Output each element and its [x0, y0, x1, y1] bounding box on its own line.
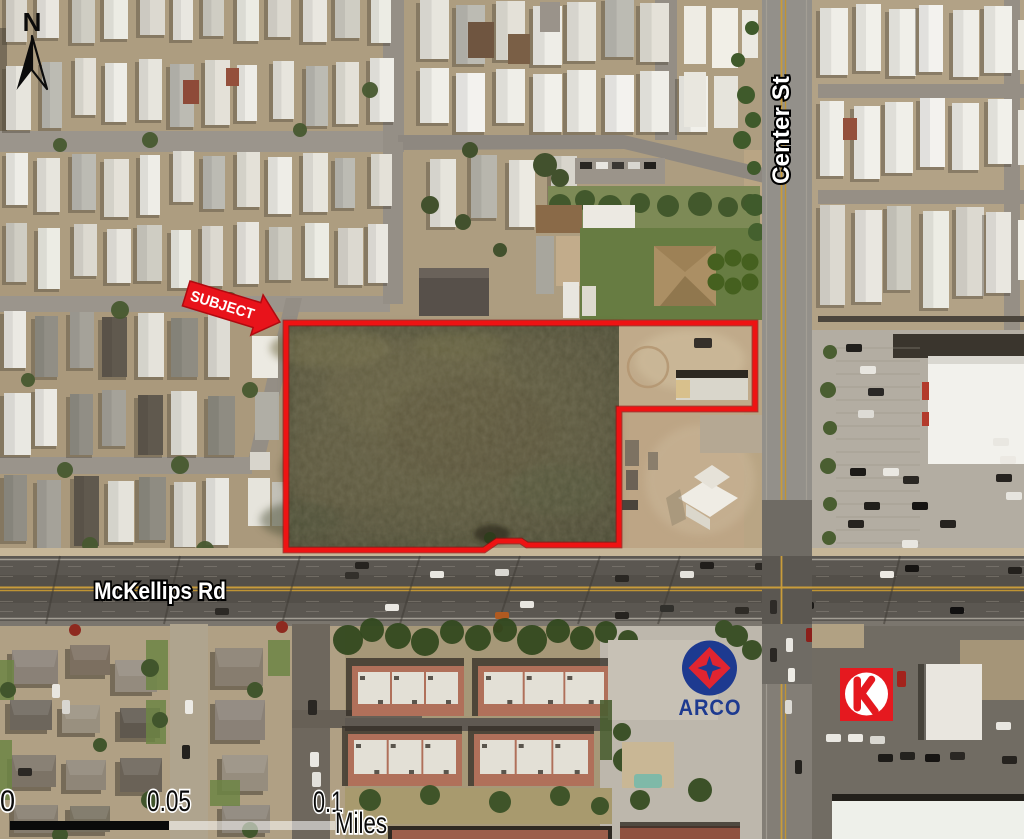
- svg-text:N: N: [23, 7, 42, 37]
- svg-text:McKellips Rd: McKellips Rd: [94, 578, 226, 605]
- svg-text:Miles: Miles: [335, 807, 387, 839]
- svg-text:0.05: 0.05: [147, 785, 191, 818]
- svg-text:Center St: Center St: [768, 76, 795, 184]
- svg-text:ARCO: ARCO: [679, 695, 742, 720]
- svg-text:0: 0: [0, 785, 15, 818]
